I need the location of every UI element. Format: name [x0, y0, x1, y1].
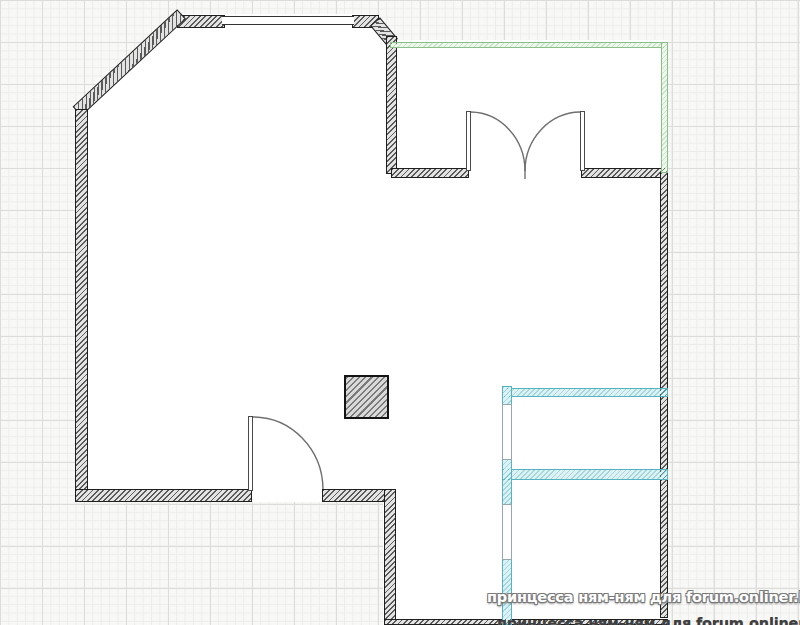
watermark-text-clipped: принцесса ням-ням для forum.onliner.by — [497, 615, 800, 625]
double-door-right-arc — [525, 112, 580, 171]
watermark-text: принцесса ням-ням для forum.onliner.by — [487, 589, 800, 605]
column — [344, 375, 389, 419]
single-door-arc — [253, 417, 323, 489]
floor-plan-canvas: принцесса ням-ням для forum.onliner.by п… — [0, 0, 800, 625]
double-door-left-arc — [471, 112, 525, 171]
door-arcs-layer — [0, 0, 800, 625]
